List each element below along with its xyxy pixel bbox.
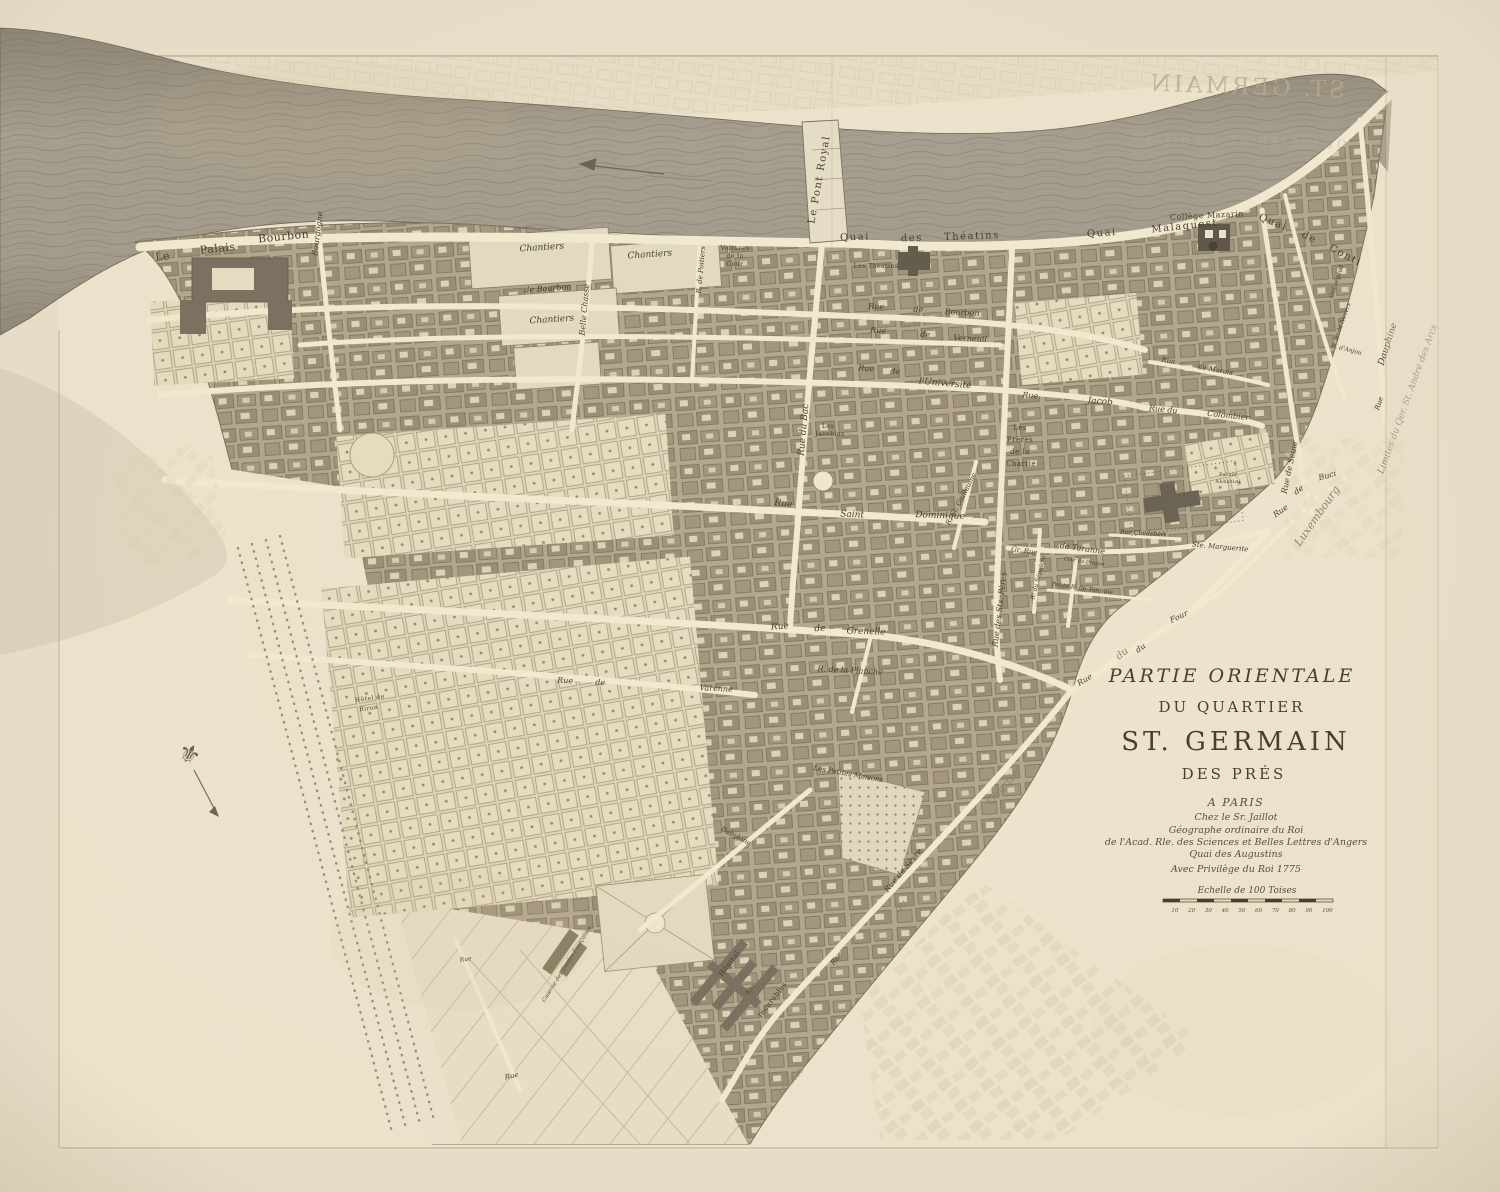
map-canvas: ⚜ ST. GERMAINQUARTIER ST. GERMAIN LePala… [0, 0, 1500, 1192]
map-scan: ⚜ ST. GERMAINQUARTIER ST. GERMAIN LePala… [0, 0, 1500, 1192]
paper-aging [0, 0, 1500, 1192]
